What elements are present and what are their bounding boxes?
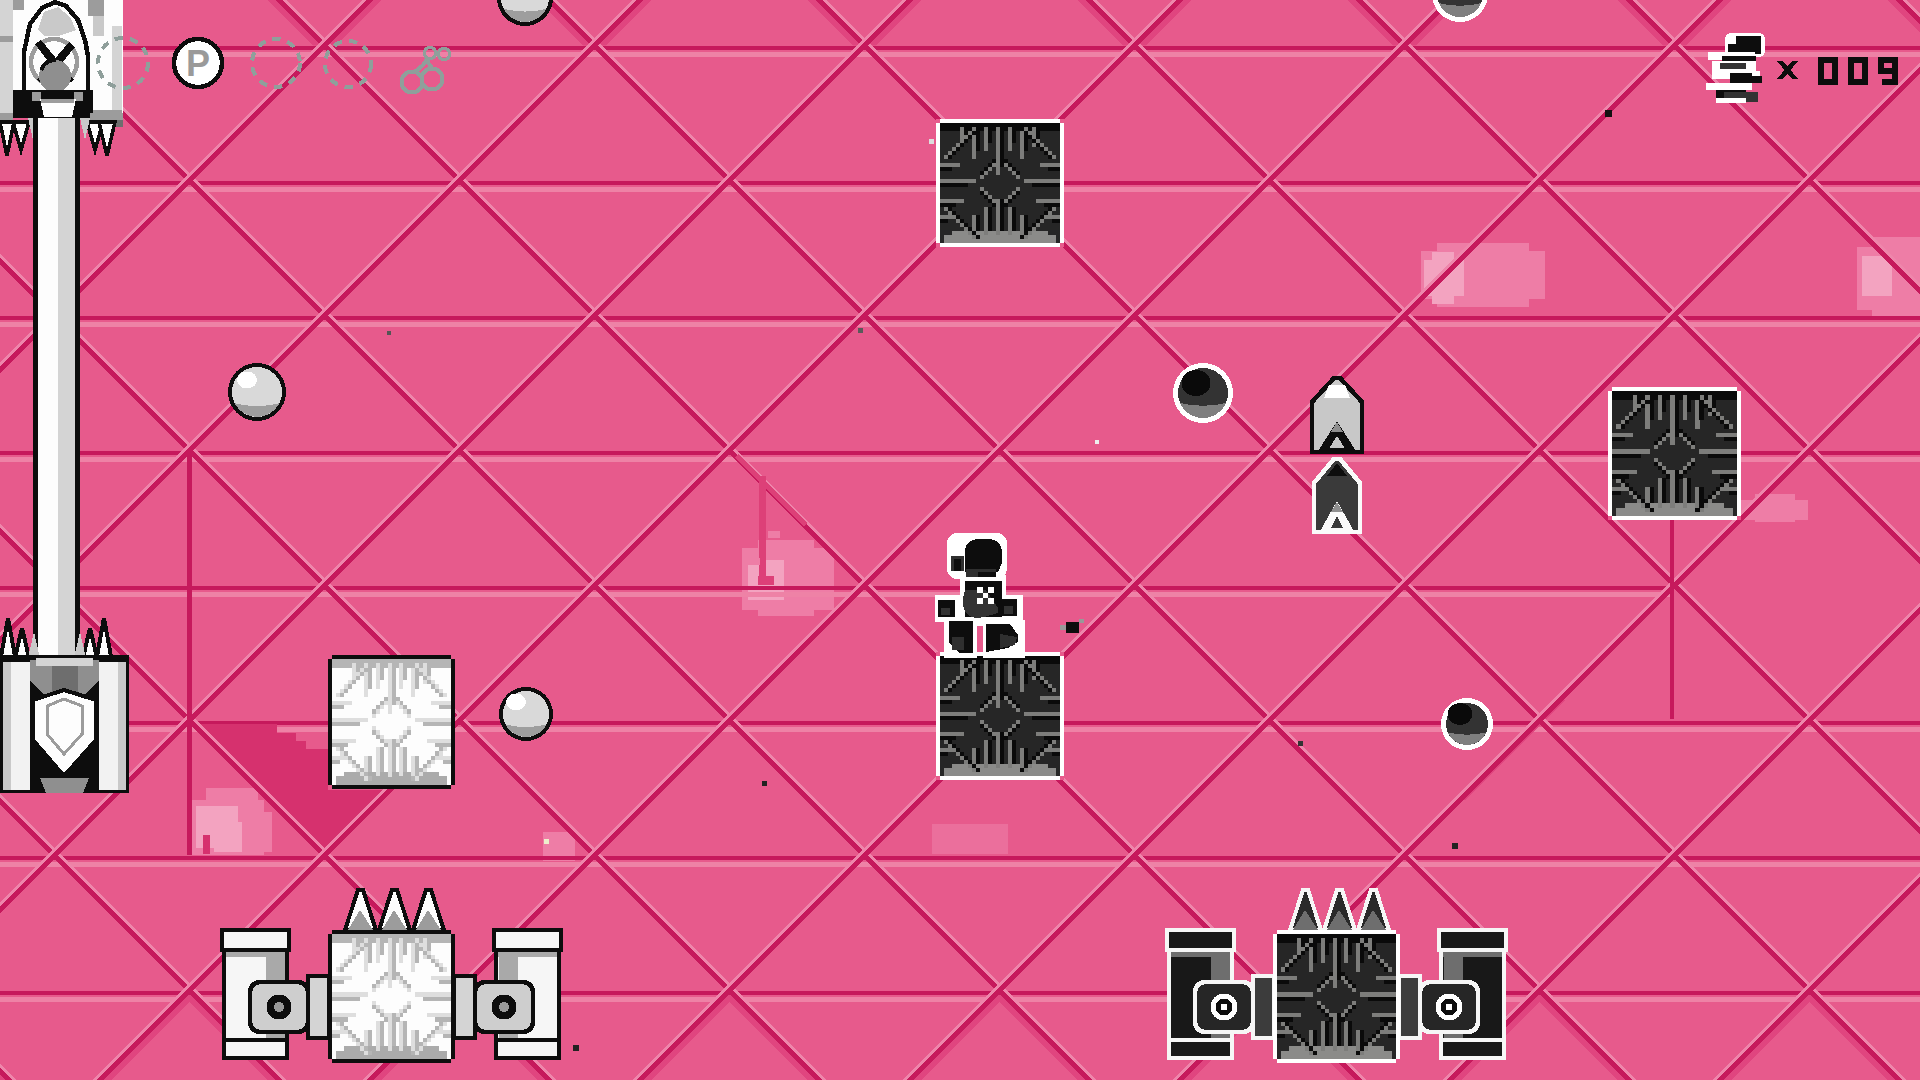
svg-text:P: P	[186, 43, 210, 84]
